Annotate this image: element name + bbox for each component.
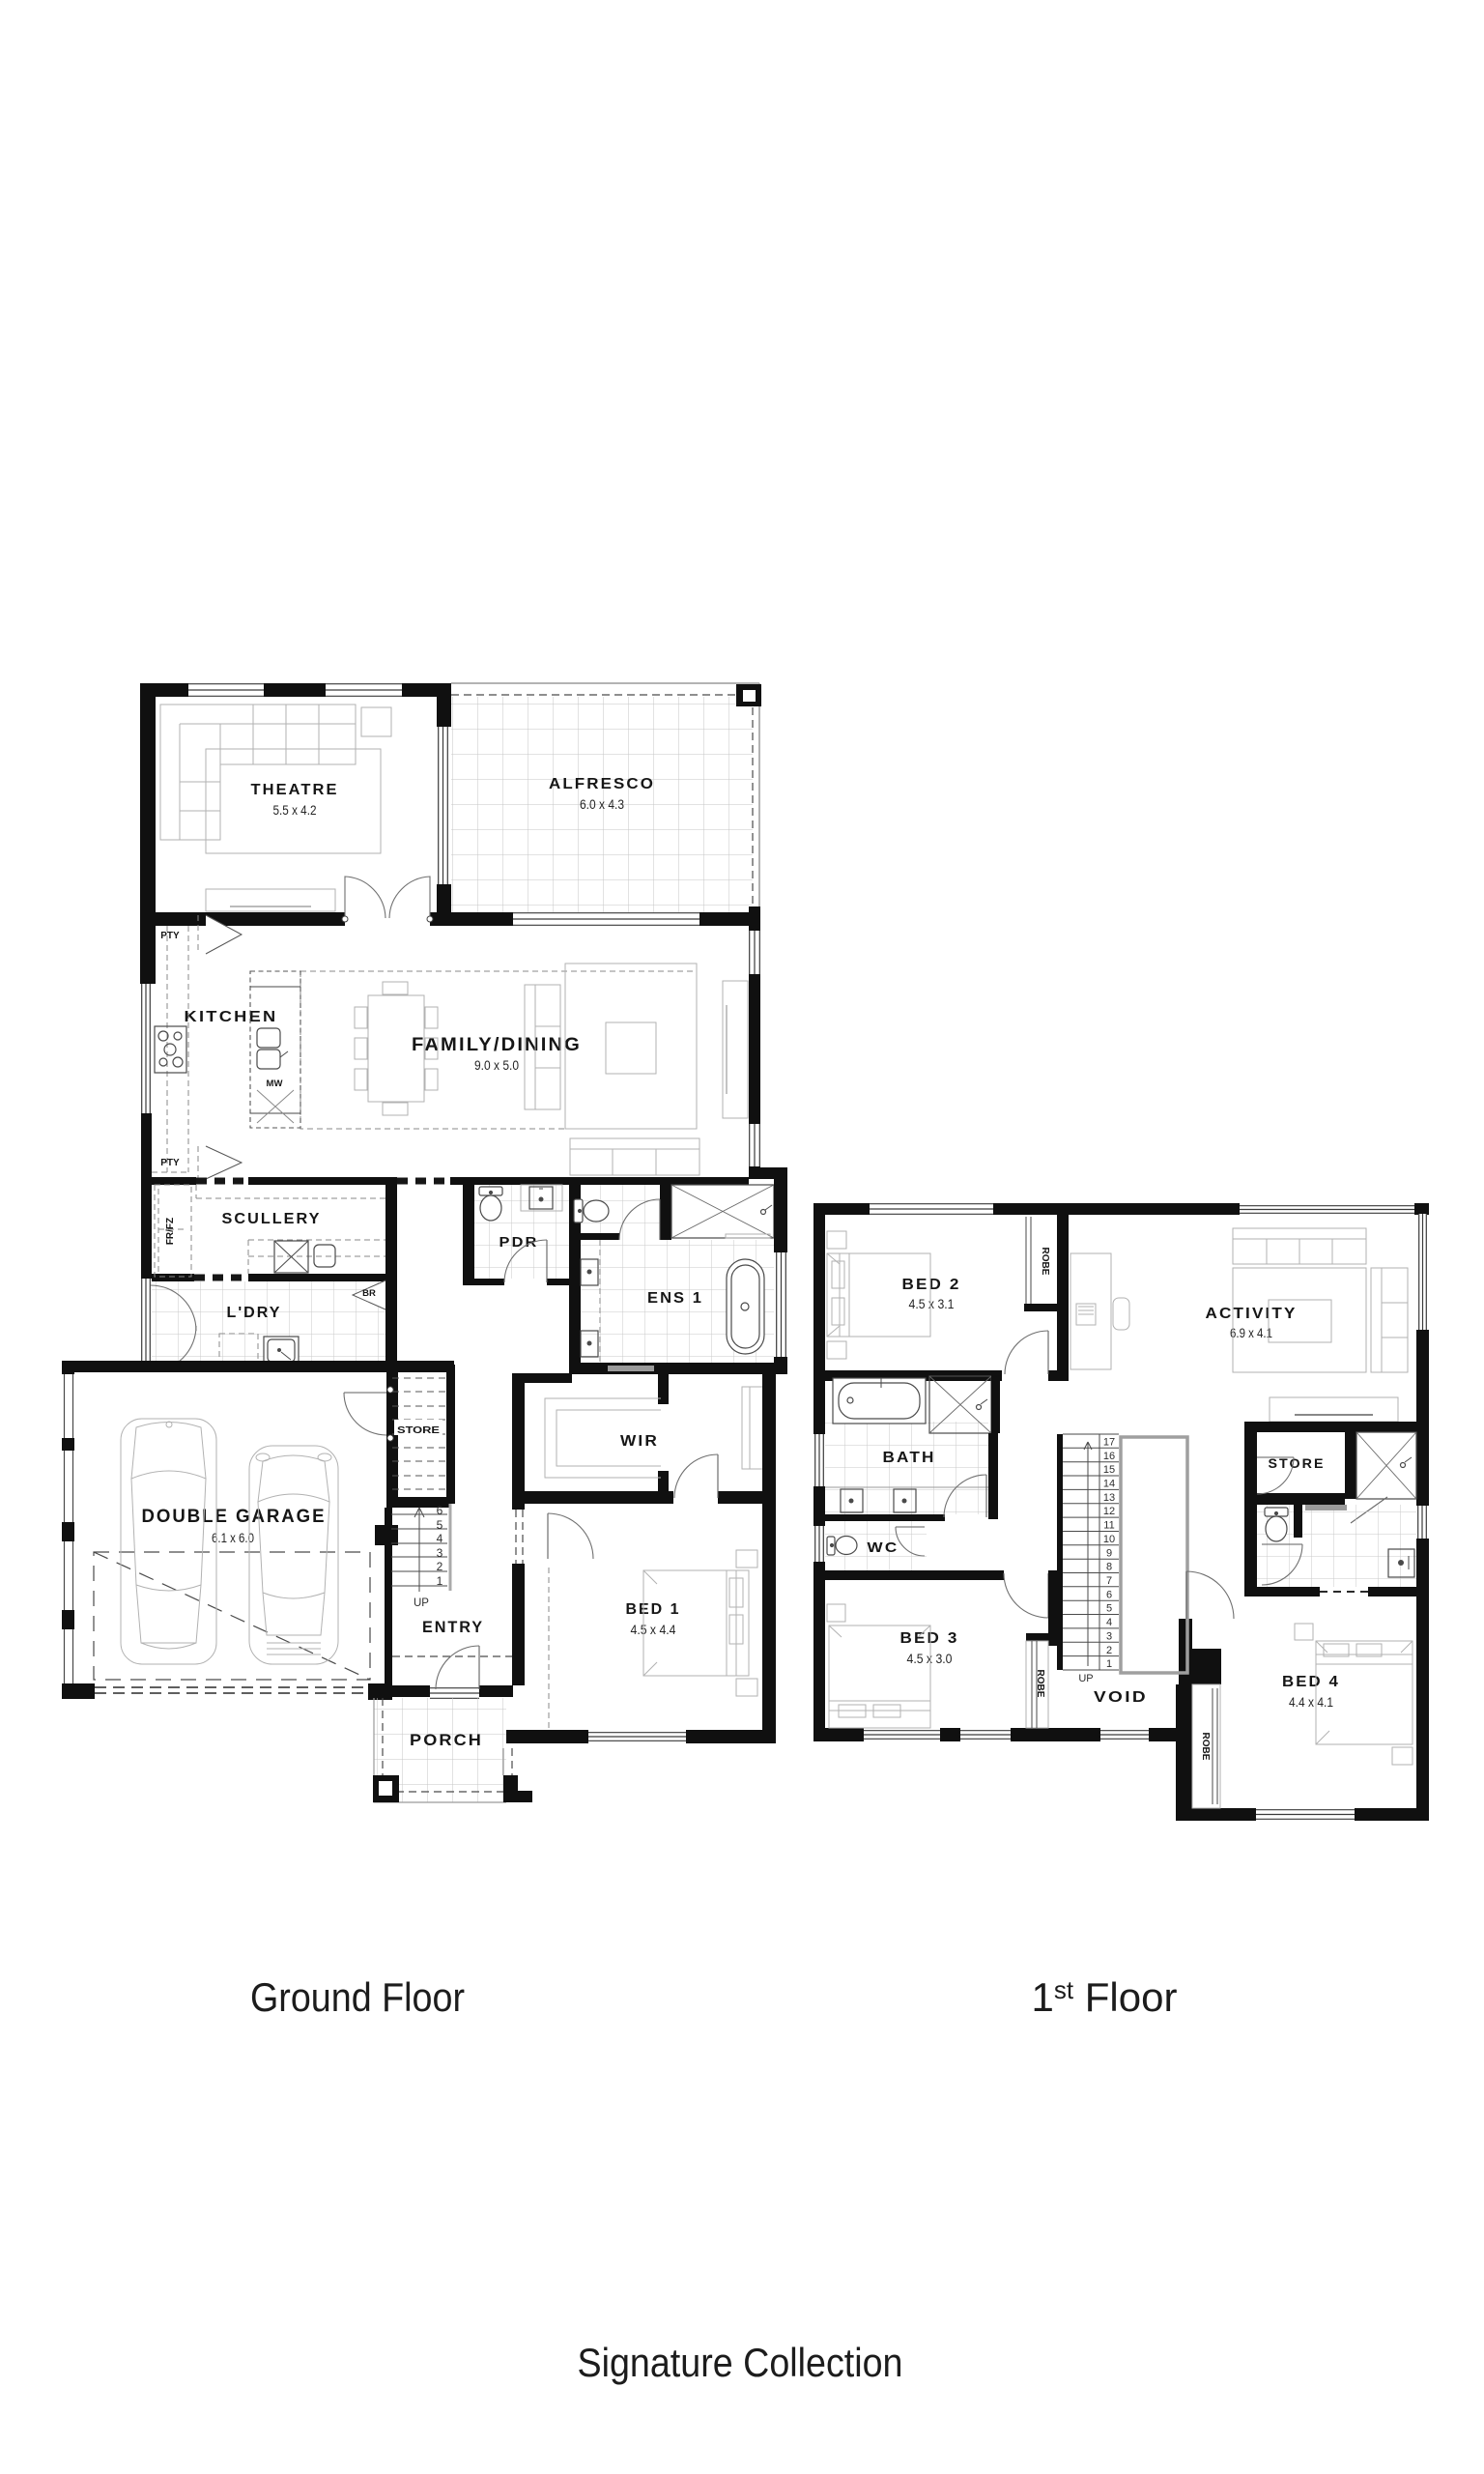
svg-text:BED 1: BED 1 — [626, 1601, 681, 1618]
svg-text:6: 6 — [1106, 1589, 1112, 1600]
svg-text:ALFRESCO: ALFRESCO — [549, 776, 655, 792]
svg-text:UP: UP — [1078, 1673, 1093, 1684]
svg-text:Signature Collection: Signature Collection — [578, 2340, 903, 2385]
svg-text:UP: UP — [414, 1597, 429, 1609]
svg-text:3: 3 — [437, 1546, 443, 1560]
svg-text:BED 2: BED 2 — [902, 1277, 961, 1293]
svg-text:1: 1 — [1106, 1658, 1112, 1670]
svg-text:DOUBLE GARAGE: DOUBLE GARAGE — [142, 1507, 327, 1527]
svg-text:STORE: STORE — [397, 1424, 440, 1436]
svg-text:2: 2 — [437, 1560, 443, 1573]
svg-text:BATH: BATH — [883, 1450, 936, 1466]
svg-text:4.5 x 3.0: 4.5 x 3.0 — [907, 1652, 953, 1666]
svg-text:5.5 x 4.2: 5.5 x 4.2 — [273, 803, 317, 818]
svg-text:4.5 x 3.1: 4.5 x 3.1 — [909, 1297, 955, 1311]
svg-text:ROBE: ROBE — [1040, 1248, 1050, 1276]
svg-text:4: 4 — [1106, 1617, 1112, 1628]
svg-text:9: 9 — [1106, 1547, 1112, 1559]
svg-text:VOID: VOID — [1094, 1689, 1148, 1706]
svg-text:2: 2 — [1106, 1645, 1112, 1656]
svg-text:17: 17 — [1103, 1437, 1115, 1449]
svg-text:7: 7 — [1106, 1575, 1112, 1587]
svg-text:5: 5 — [1106, 1603, 1112, 1615]
svg-text:ENS 1: ENS 1 — [647, 1290, 703, 1307]
svg-text:4: 4 — [437, 1532, 443, 1545]
svg-text:9.0 x 5.0: 9.0 x 5.0 — [474, 1058, 519, 1073]
svg-text:16: 16 — [1103, 1451, 1115, 1462]
svg-text:6.0 x 4.3: 6.0 x 4.3 — [580, 797, 624, 812]
svg-text:WC: WC — [868, 1539, 899, 1556]
svg-text:15: 15 — [1103, 1464, 1115, 1476]
svg-text:1: 1 — [437, 1574, 443, 1588]
svg-text:6.9 x 4.1: 6.9 x 4.1 — [1230, 1326, 1272, 1340]
svg-text:ENTRY: ENTRY — [422, 1618, 484, 1636]
svg-text:L'DRY: L'DRY — [227, 1305, 282, 1321]
svg-text:FR/FZ: FR/FZ — [165, 1218, 176, 1245]
svg-text:12: 12 — [1103, 1506, 1115, 1517]
svg-text:6: 6 — [437, 1504, 443, 1517]
svg-text:4.5 x 4.4: 4.5 x 4.4 — [631, 1623, 676, 1637]
svg-text:8: 8 — [1106, 1562, 1112, 1573]
svg-text:KITCHEN: KITCHEN — [185, 1009, 278, 1025]
svg-text:BED 4: BED 4 — [1282, 1674, 1340, 1690]
svg-text:SCULLERY: SCULLERY — [222, 1211, 322, 1227]
svg-text:1st Floor: 1st Floor — [1032, 1974, 1178, 2020]
svg-text:THEATRE: THEATRE — [251, 782, 339, 798]
svg-text:ROBE: ROBE — [1035, 1670, 1045, 1698]
svg-text:11: 11 — [1103, 1520, 1114, 1532]
svg-text:14: 14 — [1103, 1479, 1115, 1490]
svg-text:PTY: PTY — [160, 1158, 180, 1168]
svg-text:ROBE: ROBE — [1200, 1733, 1211, 1761]
svg-text:10: 10 — [1103, 1534, 1115, 1545]
svg-text:4.4 x 4.1: 4.4 x 4.1 — [1289, 1695, 1333, 1710]
svg-text:6.1 x 6.0: 6.1 x 6.0 — [212, 1531, 254, 1545]
svg-text:5: 5 — [437, 1518, 443, 1532]
svg-text:ACTIVITY: ACTIVITY — [1206, 1306, 1298, 1322]
svg-text:3: 3 — [1106, 1630, 1112, 1642]
svg-text:BR: BR — [362, 1288, 376, 1299]
svg-text:Ground Floor: Ground Floor — [250, 1974, 465, 2020]
svg-text:BED 3: BED 3 — [900, 1630, 959, 1647]
svg-text:PTY: PTY — [160, 931, 180, 941]
svg-text:MW: MW — [267, 1079, 283, 1089]
svg-text:13: 13 — [1103, 1492, 1115, 1504]
svg-text:PORCH: PORCH — [410, 1731, 483, 1749]
svg-text:WIR: WIR — [620, 1433, 659, 1450]
